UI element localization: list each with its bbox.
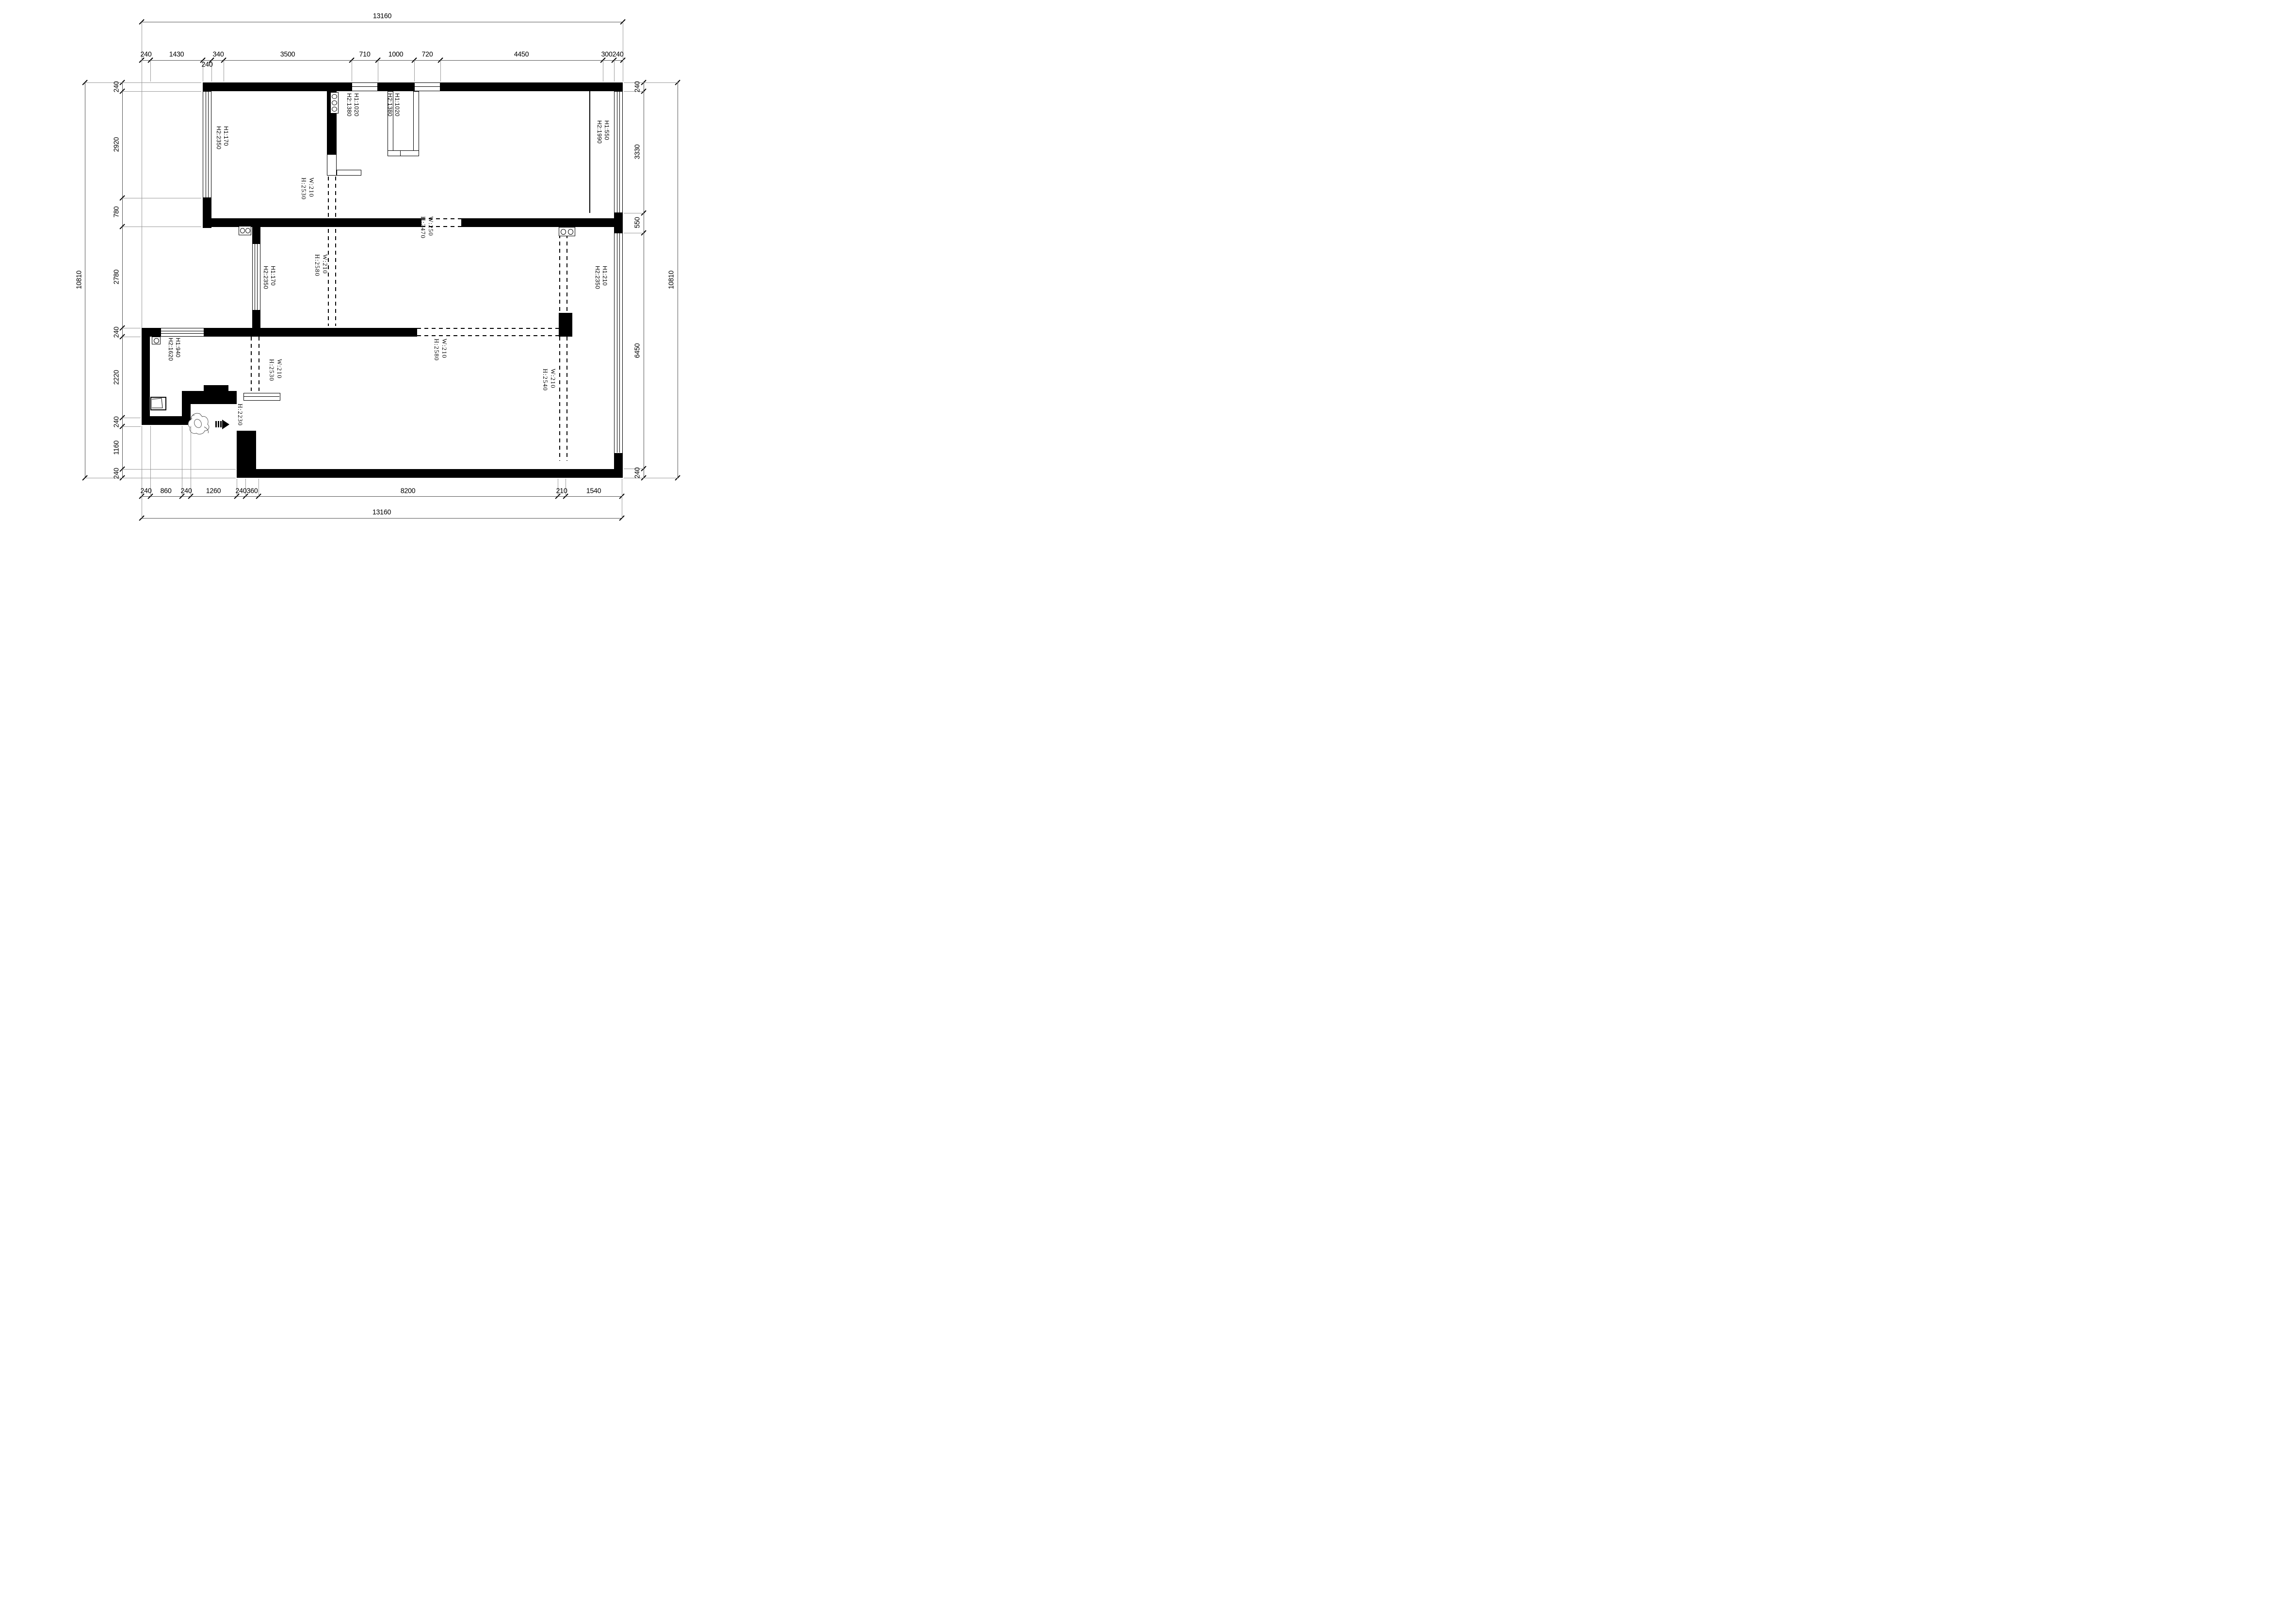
window-line (208, 92, 209, 197)
dim-top-0: 240 (141, 50, 152, 59)
window-right-top (614, 91, 623, 213)
label-line: H:2530 (268, 359, 275, 381)
window-line (255, 244, 255, 310)
window-top-1 (352, 82, 378, 91)
extension-line (624, 82, 679, 83)
dim-bottom-3: 1260 (206, 487, 221, 495)
partition-bed2-foot (400, 150, 419, 156)
label-line: H:2470 (419, 216, 427, 239)
wall-storage-top-left (142, 328, 161, 337)
burner-icon (332, 94, 337, 99)
door-dashed-dining-right (335, 229, 336, 326)
dim-left-7: 1160 (113, 440, 121, 455)
window-line (257, 244, 258, 310)
window-line (619, 92, 620, 212)
bay-window-inner-line (589, 91, 590, 213)
extension-line (150, 60, 151, 81)
wall-entry-north-step (204, 385, 228, 392)
label-line: H2:1380 (386, 93, 393, 116)
wall-h1-right (461, 218, 623, 227)
label-line: H1:170 (222, 126, 229, 149)
window-line (352, 86, 377, 87)
dim-bottom-4: 240 (236, 487, 247, 495)
label-line: W:210 (308, 178, 315, 200)
window-line (161, 331, 204, 331)
burner-icon (245, 228, 250, 233)
dim-top-8: 4450 (514, 50, 529, 59)
burner-icon (568, 229, 573, 235)
extension-line (122, 198, 201, 198)
label-line: H:2580 (313, 254, 321, 276)
extension-line (440, 60, 441, 81)
burner-icon (332, 100, 337, 105)
dim-bottom-8: 1540 (586, 487, 601, 495)
arrow-head (222, 420, 229, 429)
door-dashed-upper-right (335, 177, 336, 218)
label-window-kitchen: H1:170 H2:2350 (262, 266, 276, 289)
wall-storage-left (142, 328, 150, 425)
label-line: H:2580 (433, 339, 440, 361)
wall-entry-south (237, 431, 256, 478)
label-line: H2:1990 (596, 120, 603, 144)
dim-line-right (644, 82, 644, 478)
dim-line-top (142, 60, 623, 61)
label-line: H2:2350 (262, 266, 269, 289)
burner-icon (332, 107, 337, 112)
label-line: H1:1020 (353, 93, 360, 116)
label-window-right-mid: H1:210 H2:2350 (594, 266, 608, 289)
label-line: H1:940 (174, 338, 181, 361)
dim-top-10: 240 (613, 50, 624, 59)
partition-l-stub-v (327, 154, 337, 176)
label-line: H2:2350 (215, 126, 222, 149)
door-dashed-dining-left (328, 229, 329, 326)
extension-line (352, 60, 352, 81)
wall-top-a (203, 82, 352, 91)
passage-dashed-center-b (417, 335, 559, 336)
dim-left-5: 2220 (113, 370, 121, 385)
dim-bottom-6: 8200 (401, 487, 416, 495)
dim-bottom-7: 210 (556, 487, 567, 495)
stove-3burner-icon (330, 92, 339, 114)
dim-line-bottom-outer (142, 518, 622, 519)
label-line: H1:170 (269, 266, 276, 289)
label-door-dining: W:210 H:2580 (313, 254, 329, 276)
threshold-line (244, 396, 279, 397)
label-line: W:210 (440, 339, 448, 361)
partition-l-stub-h (337, 170, 361, 176)
dim-left-outer: 10810 (75, 271, 83, 289)
dim-top-5: 710 (359, 50, 371, 59)
window-storage (161, 328, 204, 337)
extension-line (142, 426, 142, 518)
label-window-storage: H1:940 H2:1620 (167, 338, 181, 361)
label-line: H1:1020 (393, 93, 401, 116)
extension-line (122, 426, 141, 427)
wall-pier-mid (559, 313, 572, 337)
label-window-right-top: H1:550 H2:1990 (596, 120, 610, 144)
door-dashed-corridor-upper-a (559, 227, 560, 313)
window-line (617, 92, 617, 212)
extension-line (622, 479, 622, 518)
door-dashed-upper-left (328, 177, 329, 218)
dim-right-0: 240 (633, 81, 642, 93)
dim-line-top-outer (142, 22, 623, 22)
partition-bed2 (413, 91, 419, 156)
wall-h2-main (260, 328, 417, 337)
dim-left-3: 2780 (113, 270, 121, 285)
door-dashed-corridor-upper-b (566, 227, 567, 313)
dim-right-3: 6450 (633, 343, 642, 358)
dim-top-outer: 13160 (373, 12, 391, 20)
extension-line (122, 337, 141, 337)
dim-top-7: 720 (422, 50, 433, 59)
dim-line-left (122, 82, 123, 478)
dim-left-4: 240 (113, 327, 121, 338)
label-line: W:250 (427, 216, 435, 239)
dim-top-9: 300 (601, 50, 613, 59)
window-kitchen (252, 244, 260, 310)
gas-meter-icon (152, 337, 161, 344)
dim-bottom-2: 240 (181, 487, 192, 495)
label-line: H:2540 (541, 369, 549, 391)
extension-line (182, 426, 182, 496)
label-window-top1: H1:1020 H2:1380 (345, 93, 360, 116)
arrow-bar (220, 421, 222, 427)
window-line (617, 233, 617, 453)
extension-line (624, 213, 645, 213)
extension-line (624, 233, 645, 233)
dim-left-8: 240 (113, 468, 121, 479)
dim-left-0: 240 (113, 81, 121, 93)
extension-line (122, 469, 236, 470)
dim-top-3: 340 (213, 50, 224, 59)
extension-line (378, 60, 378, 81)
label-line: W:210 (275, 359, 283, 381)
floor-plan-canvas: H1:1020 H2:1380 H1:1020 H2:1380 H1:170 H… (0, 0, 761, 541)
label-line: H2:2350 (594, 266, 601, 289)
extension-line (224, 60, 224, 81)
dim-left-1: 2920 (113, 137, 121, 152)
door-dashed-corridor-lower-b (566, 337, 567, 461)
dim-bottom-1: 860 (161, 487, 172, 495)
door-dashed-corridor-lower-a (559, 337, 560, 461)
window-right-mid (614, 233, 623, 454)
extension-line (122, 227, 201, 227)
label-line: W:210 (321, 254, 329, 276)
extension-line (85, 478, 236, 478)
door-dashed-entry-b (259, 337, 259, 391)
window-line (161, 333, 204, 334)
extension-line (142, 22, 142, 328)
wall-h1-left (260, 218, 421, 227)
extension-line (603, 60, 603, 81)
window-left (203, 91, 211, 198)
entry-threshold (243, 393, 280, 401)
wall-top-c (440, 82, 623, 91)
wall-storage-top-right (204, 328, 211, 337)
arrow-bar (215, 421, 217, 427)
extension-line (85, 82, 201, 83)
extension-line (191, 426, 191, 496)
wall-entry-north (182, 391, 237, 404)
extension-line (122, 418, 141, 418)
dim-right-1: 3330 (633, 145, 642, 160)
extension-line (614, 60, 615, 81)
dim-bottom-outer: 13160 (372, 508, 391, 517)
label-line: W:210 (549, 369, 557, 391)
dim-bottom-5: 360 (247, 487, 258, 495)
dim-line-bottom (142, 496, 622, 497)
shaft-diagonal-icon (151, 398, 165, 409)
label-door-right: W:210 H:2540 (541, 369, 557, 391)
label-line: H:2530 (300, 178, 308, 200)
meter-dial-icon (154, 338, 159, 343)
label-line: H2:1380 (345, 93, 353, 116)
dim-right-outer: 10810 (667, 271, 676, 289)
dim-line-left-outer (85, 82, 85, 478)
label-door-upper: W:210 H:2530 (300, 178, 315, 200)
extension-line (259, 479, 259, 496)
door-dashed-entry-a (251, 337, 252, 391)
person-figure (186, 412, 211, 436)
label-passage-center: W:210 H:2580 (433, 339, 448, 361)
label-line: H1:210 (601, 266, 608, 289)
dim-right-2: 550 (633, 217, 642, 228)
window-line (415, 86, 440, 87)
dim-top-6: 1000 (388, 50, 404, 59)
burner-icon (561, 229, 566, 235)
wall-h2-left (211, 328, 260, 337)
shaft-box-icon (150, 397, 166, 410)
window-line (206, 92, 206, 197)
dim-top-1: 1430 (169, 50, 184, 59)
extension-line (122, 91, 201, 92)
dim-left-6: 240 (113, 417, 121, 428)
extension-line (122, 328, 141, 328)
dim-bottom-0: 240 (141, 487, 152, 495)
label-window-top2: H1:1020 H2:1380 (386, 93, 401, 116)
label-window-left: H1:170 H2:2350 (215, 126, 229, 149)
dim-top-4: 3500 (280, 50, 295, 59)
stove-2burner-right-icon (559, 227, 575, 236)
dim-top-2: 240 (202, 61, 213, 69)
label-line: H2:1620 (167, 338, 174, 361)
wall-top-b (378, 82, 414, 91)
extension-line (150, 426, 151, 496)
passage-dashed-center-a (417, 328, 559, 329)
wall-bottom-main (256, 469, 623, 478)
label-passage-wide: W:250 H:2470 (419, 216, 435, 239)
dim-right-4: 240 (633, 468, 642, 479)
entry-arrow-icon (215, 419, 232, 430)
label-line: H1:550 (603, 120, 610, 144)
stove-2burner-left-icon (239, 226, 251, 235)
label-door-entry: W:210 H:2530 (268, 359, 283, 381)
burner-icon (240, 228, 245, 233)
dim-line-right-outer (678, 82, 678, 478)
extension-line (414, 60, 415, 81)
extension-line (624, 478, 679, 478)
window-top-2 (414, 82, 440, 91)
wall-v3-top (252, 218, 260, 244)
label-entry-height: H:2230 (236, 404, 244, 426)
window-line (619, 233, 620, 453)
arrow-bar (218, 421, 219, 427)
dim-left-2: 780 (113, 207, 121, 218)
